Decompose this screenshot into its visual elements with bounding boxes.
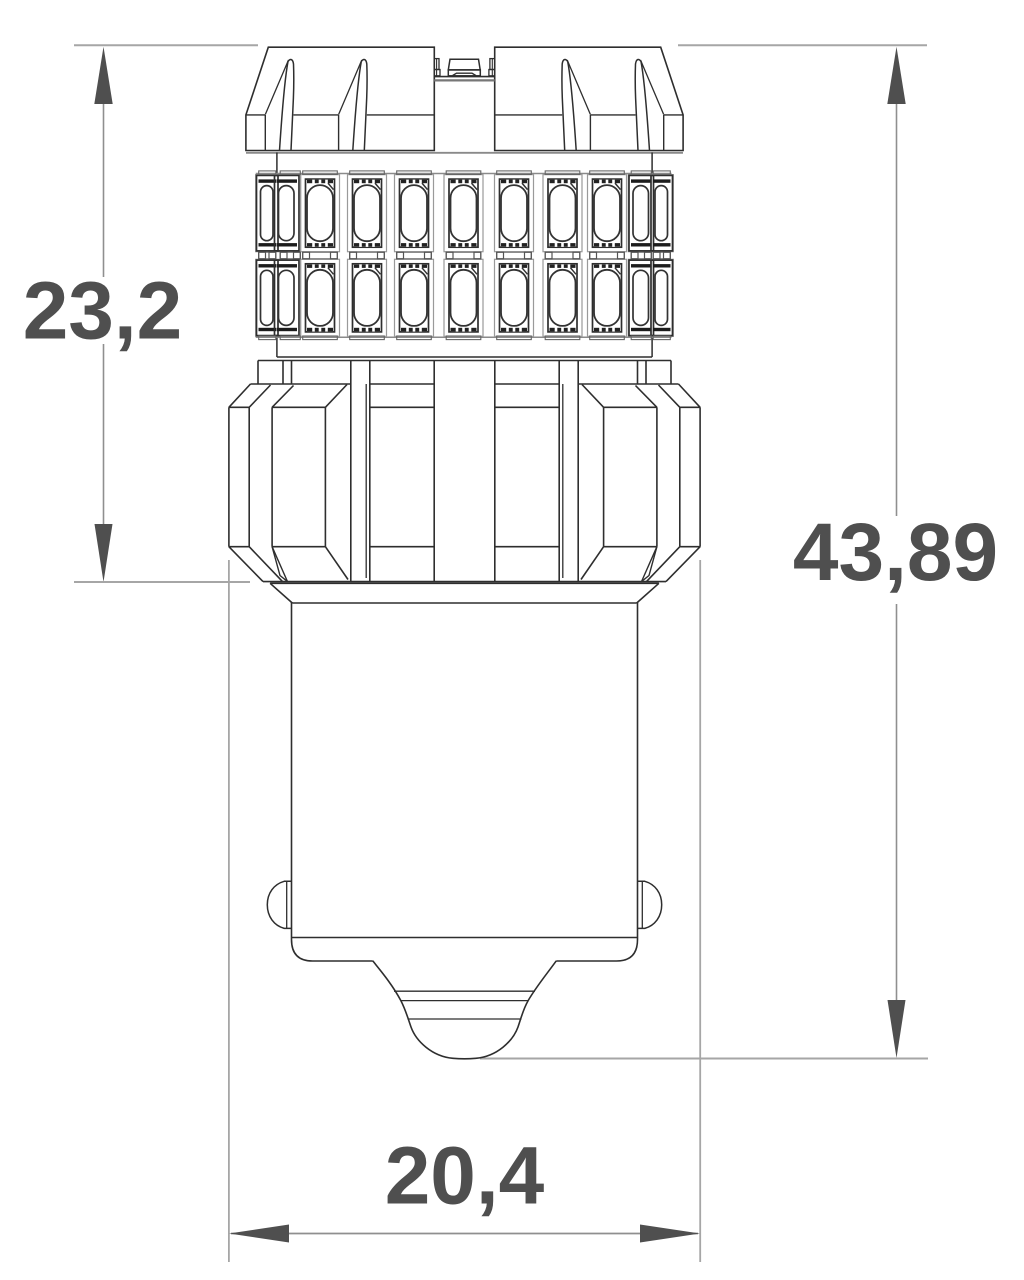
- svg-text:23,2: 23,2: [23, 266, 183, 357]
- svg-text:43,89: 43,89: [793, 507, 998, 598]
- svg-text:20,4: 20,4: [385, 1131, 545, 1222]
